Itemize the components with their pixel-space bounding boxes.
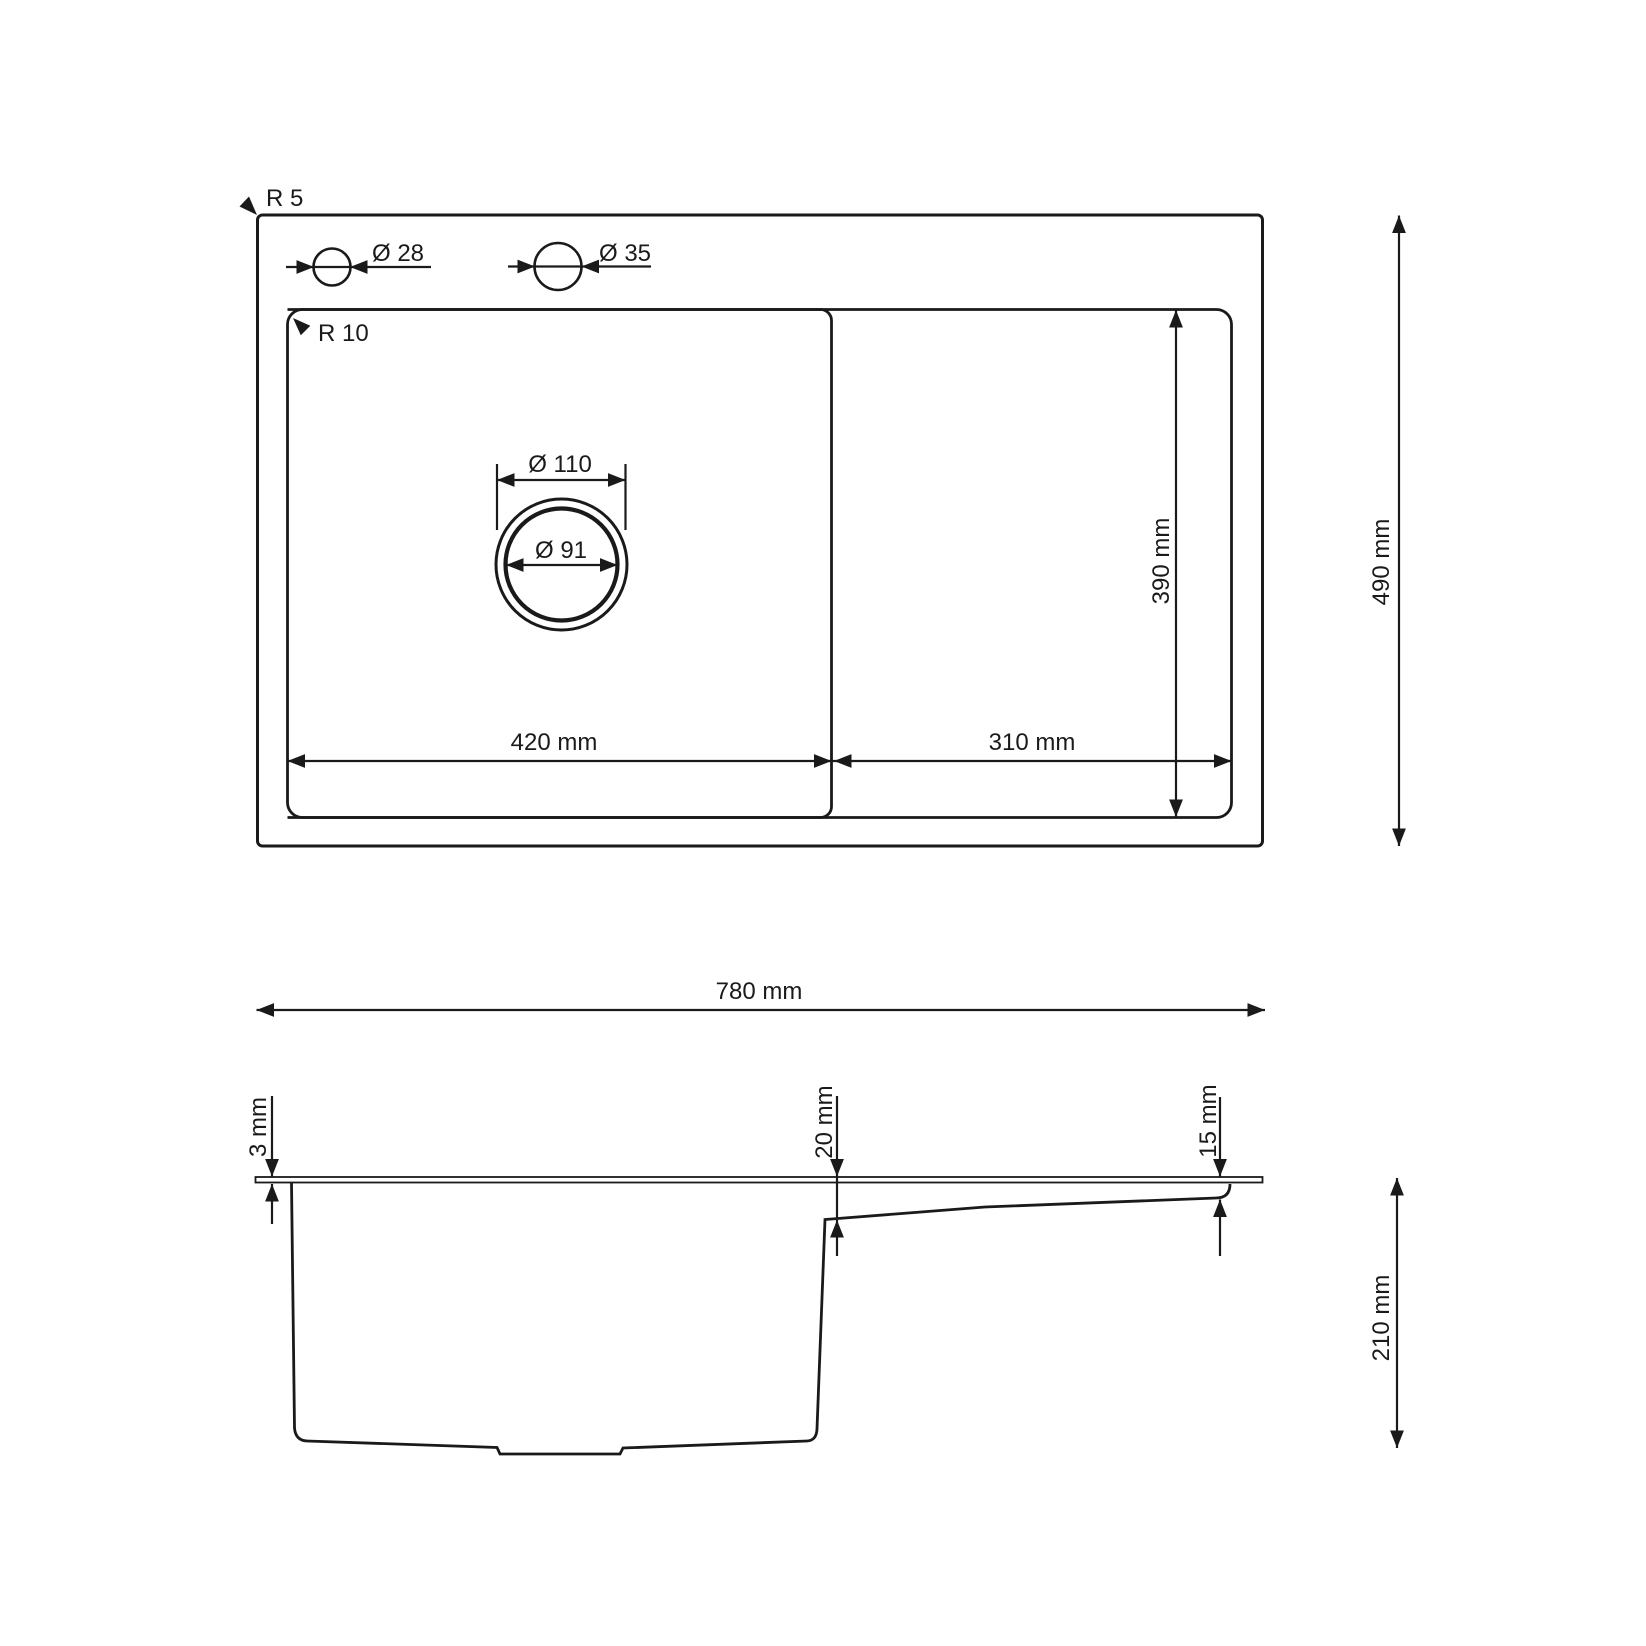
svg-text:Ø 35: Ø 35	[599, 240, 651, 267]
svg-text:390 mm: 390 mm	[1148, 518, 1175, 605]
svg-text:420 mm: 420 mm	[511, 729, 598, 756]
svg-text:R 10: R 10	[318, 320, 369, 347]
svg-text:490 mm: 490 mm	[1368, 519, 1395, 606]
svg-text:15 mm: 15 mm	[1195, 1084, 1222, 1157]
svg-text:780 mm: 780 mm	[716, 978, 803, 1005]
svg-text:Ø 28: Ø 28	[372, 240, 424, 267]
svg-text:3 mm: 3 mm	[245, 1097, 272, 1157]
svg-text:20 mm: 20 mm	[811, 1085, 838, 1158]
svg-text:310 mm: 310 mm	[989, 729, 1076, 756]
svg-text:R 5: R 5	[266, 185, 303, 212]
svg-text:210 mm: 210 mm	[1368, 1275, 1395, 1362]
svg-text:Ø 110: Ø 110	[528, 451, 592, 478]
svg-text:Ø 91: Ø 91	[535, 537, 587, 564]
